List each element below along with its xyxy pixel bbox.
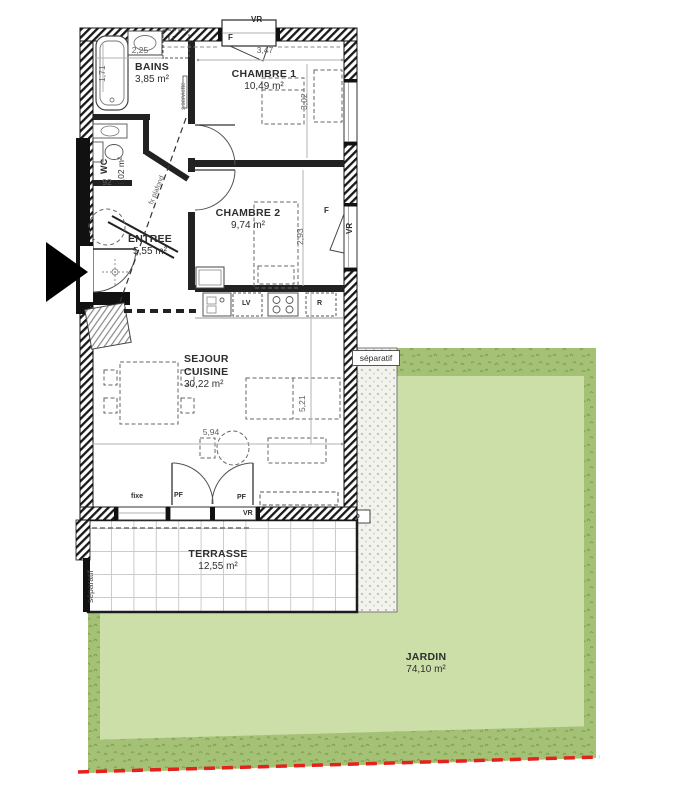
dim-chambre1-depth: 3,02 [300,93,310,110]
window-chambre1-east [344,82,357,142]
chambre2-name: CHAMBRE 2 [216,207,281,219]
cooktop [268,293,298,316]
jardin-area: 74,10 m² [406,664,445,675]
separator-strip [352,348,397,612]
separatif-label-left: séparatif [86,570,96,603]
window-fixe-south [118,507,166,520]
lv-label: LV [242,300,250,308]
f-label-chambre2-window: F [324,206,329,215]
bains-name: BAINS [135,61,169,73]
vr-label-chambre2-window: VR [345,223,354,234]
room-label-jardin: JARDIN 74,10 m² [366,651,486,675]
floorplan-drawing [0,0,678,800]
chambre2-area: 9,74 m² [231,220,265,231]
dim-sejour-width: 5,94 [194,428,228,438]
window-chambre2-east [344,206,357,268]
room-label-bains: BAINS 3,85 m² [110,61,194,85]
chambre1-name: CHAMBRE 1 [232,68,297,80]
separatif-right-text: séparatif [360,353,393,363]
sejour-name-2: CUISINE [184,366,228,378]
f-label-top-window: F [228,33,233,42]
garden-hedge-right [584,374,596,734]
room-label-entree: ENTREE 5,55 m² [106,233,194,257]
room-label-chambre2: CHAMBRE 2 9,74 m² [196,207,300,231]
floorplan-page: BAINS 3,85 m² CHAMBRE 1 10,49 m² CHAMBRE… [0,0,678,800]
wc-name: WC [99,159,109,175]
room-label-chambre1: CHAMBRE 1 10,49 m² [212,68,316,92]
garden-hedge-left [88,612,100,744]
room-label-sejour: SEJOUR CUISINE 30,22 m² [184,353,268,390]
sejour-area: 30,22 m² [184,379,223,390]
room-label-terrasse: TERRASSE 12,55 m² [158,548,278,572]
jardin-name: JARDIN [406,651,447,663]
chambre1-area: 10,49 m² [244,81,283,92]
vr-label-south-door: VR [243,510,253,518]
dim-bains-width: 2,25 [124,46,156,56]
terrasse-left-wall [76,520,90,560]
dim-chambre2-depth: 2,93 [296,228,306,245]
seche-serviette-label: s.serviette [181,83,188,110]
vr-label-top-window: VR [251,15,262,24]
dim-chambre1-width: 3,47 [247,46,283,56]
wc-area: 1,02 m² [117,157,127,186]
dim-wc-width: 92 [98,178,116,188]
separatif-label-right: séparatif [352,350,400,366]
fixe-label: fixe [131,493,143,501]
ll-label: LL [168,36,177,44]
garden-hedge-top [397,348,596,376]
dim-sejour-depth: 5,21 [298,395,308,412]
entree-name: ENTREE [128,233,172,245]
terrasse-name: TERRASSE [188,548,247,560]
entree-area: 5,55 m² [133,246,167,257]
terrasse-area: 12,55 m² [198,561,237,572]
sejour-name-1: SEJOUR [184,353,229,365]
bains-area: 3,85 m² [135,74,169,85]
pf-label-left: PF [174,492,183,500]
r-label: R [317,300,322,308]
pf-label-right: PF [237,494,246,502]
dim-bains-depth: 1,71 [98,65,108,82]
